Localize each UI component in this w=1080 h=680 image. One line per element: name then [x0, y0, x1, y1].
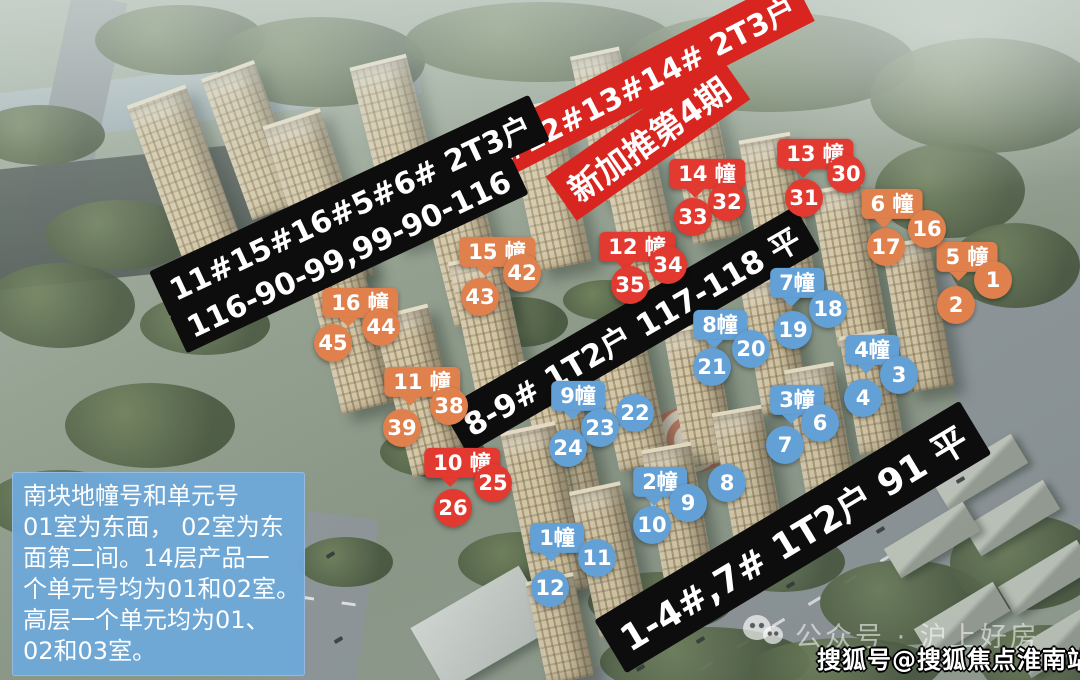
unit-number-circle: 34 [649, 246, 687, 284]
unit-number-circle: 16 [908, 210, 946, 248]
label-pointer [782, 415, 800, 424]
building-label: 9幢 [551, 381, 605, 411]
unit-number-circle: 17 [867, 228, 905, 266]
unit-number-circle: 21 [693, 348, 731, 386]
unit-number-circle: 12 [531, 569, 569, 607]
unit-number-circle: 25 [474, 464, 512, 502]
info-box: 南块地幢号和单元号01室为东面， 02室为东面第二间。14层产品一个单元号均为0… [12, 472, 305, 676]
info-box-line: 面第二间。14层产品一 [23, 543, 294, 574]
label-pointer [476, 267, 494, 276]
unit-number-circle: 32 [708, 183, 746, 221]
unit-number-circle: 31 [785, 179, 823, 217]
unit-number-circle: 30 [827, 155, 865, 193]
unit-number-circle: 38 [430, 387, 468, 425]
label-pointer [645, 497, 663, 506]
unit-number-circle: 23 [581, 409, 619, 447]
unit-number-circle: 39 [383, 409, 421, 447]
unit-number-circle: 35 [611, 266, 649, 304]
label-pointer [542, 553, 560, 562]
info-box-line: 高层一个单元均为01、 [23, 605, 294, 636]
unit-number-circle: 11 [578, 539, 616, 577]
unit-number-circle: 9 [669, 484, 707, 522]
unit-number-circle: 43 [461, 278, 499, 316]
info-box-line: 个单元号均为01和02室。 [23, 574, 294, 605]
unit-number-circle: 3 [880, 356, 918, 394]
label-pointer [441, 478, 459, 487]
label-pointer [782, 298, 800, 307]
unit-number-circle: 18 [809, 290, 847, 328]
unit-number-circle: 26 [434, 489, 472, 527]
label-pointer [563, 411, 581, 420]
unit-number-circle: 10 [633, 506, 671, 544]
unit-number-circle: 20 [732, 330, 770, 368]
label-pointer [401, 397, 419, 406]
unit-number-circle: 42 [503, 254, 541, 292]
unit-number-circle: 22 [616, 394, 654, 432]
unit-number-circle: 45 [314, 324, 352, 362]
unit-number-circle: 6 [801, 404, 839, 442]
label-pointer [857, 365, 875, 374]
unit-number-circle: 2 [937, 286, 975, 324]
unit-number-circle: 33 [674, 198, 712, 236]
aerial-site-plan: 10#12#13#14# 2T3户 新加推第4期 11#15#16#5#6# 2… [0, 0, 1080, 680]
unit-number-circle: 7 [766, 426, 804, 464]
unit-number-circle: 19 [774, 311, 812, 349]
label-pointer [686, 189, 704, 198]
label-pointer [875, 219, 893, 228]
wechat-icon [743, 615, 789, 651]
info-box-line: 南块地幢号和单元号 [23, 481, 294, 512]
unit-number-circle: 1 [974, 261, 1012, 299]
source-tag: 搜狐号@搜狐焦点淮南站 [817, 640, 1080, 675]
unit-number-circle: 8 [708, 464, 746, 502]
unit-number-circle: 44 [362, 308, 400, 346]
unit-number-circle: 24 [549, 429, 587, 467]
label-pointer [794, 169, 812, 178]
label-pointer [950, 272, 968, 281]
unit-number-circle: 4 [844, 379, 882, 417]
building-label: 1幢 [530, 523, 584, 553]
info-box-line: 01室为东面， 02室为东 [23, 512, 294, 543]
info-box-line: 02和03室。 [23, 636, 294, 667]
wechat-bubble-small [763, 626, 783, 644]
